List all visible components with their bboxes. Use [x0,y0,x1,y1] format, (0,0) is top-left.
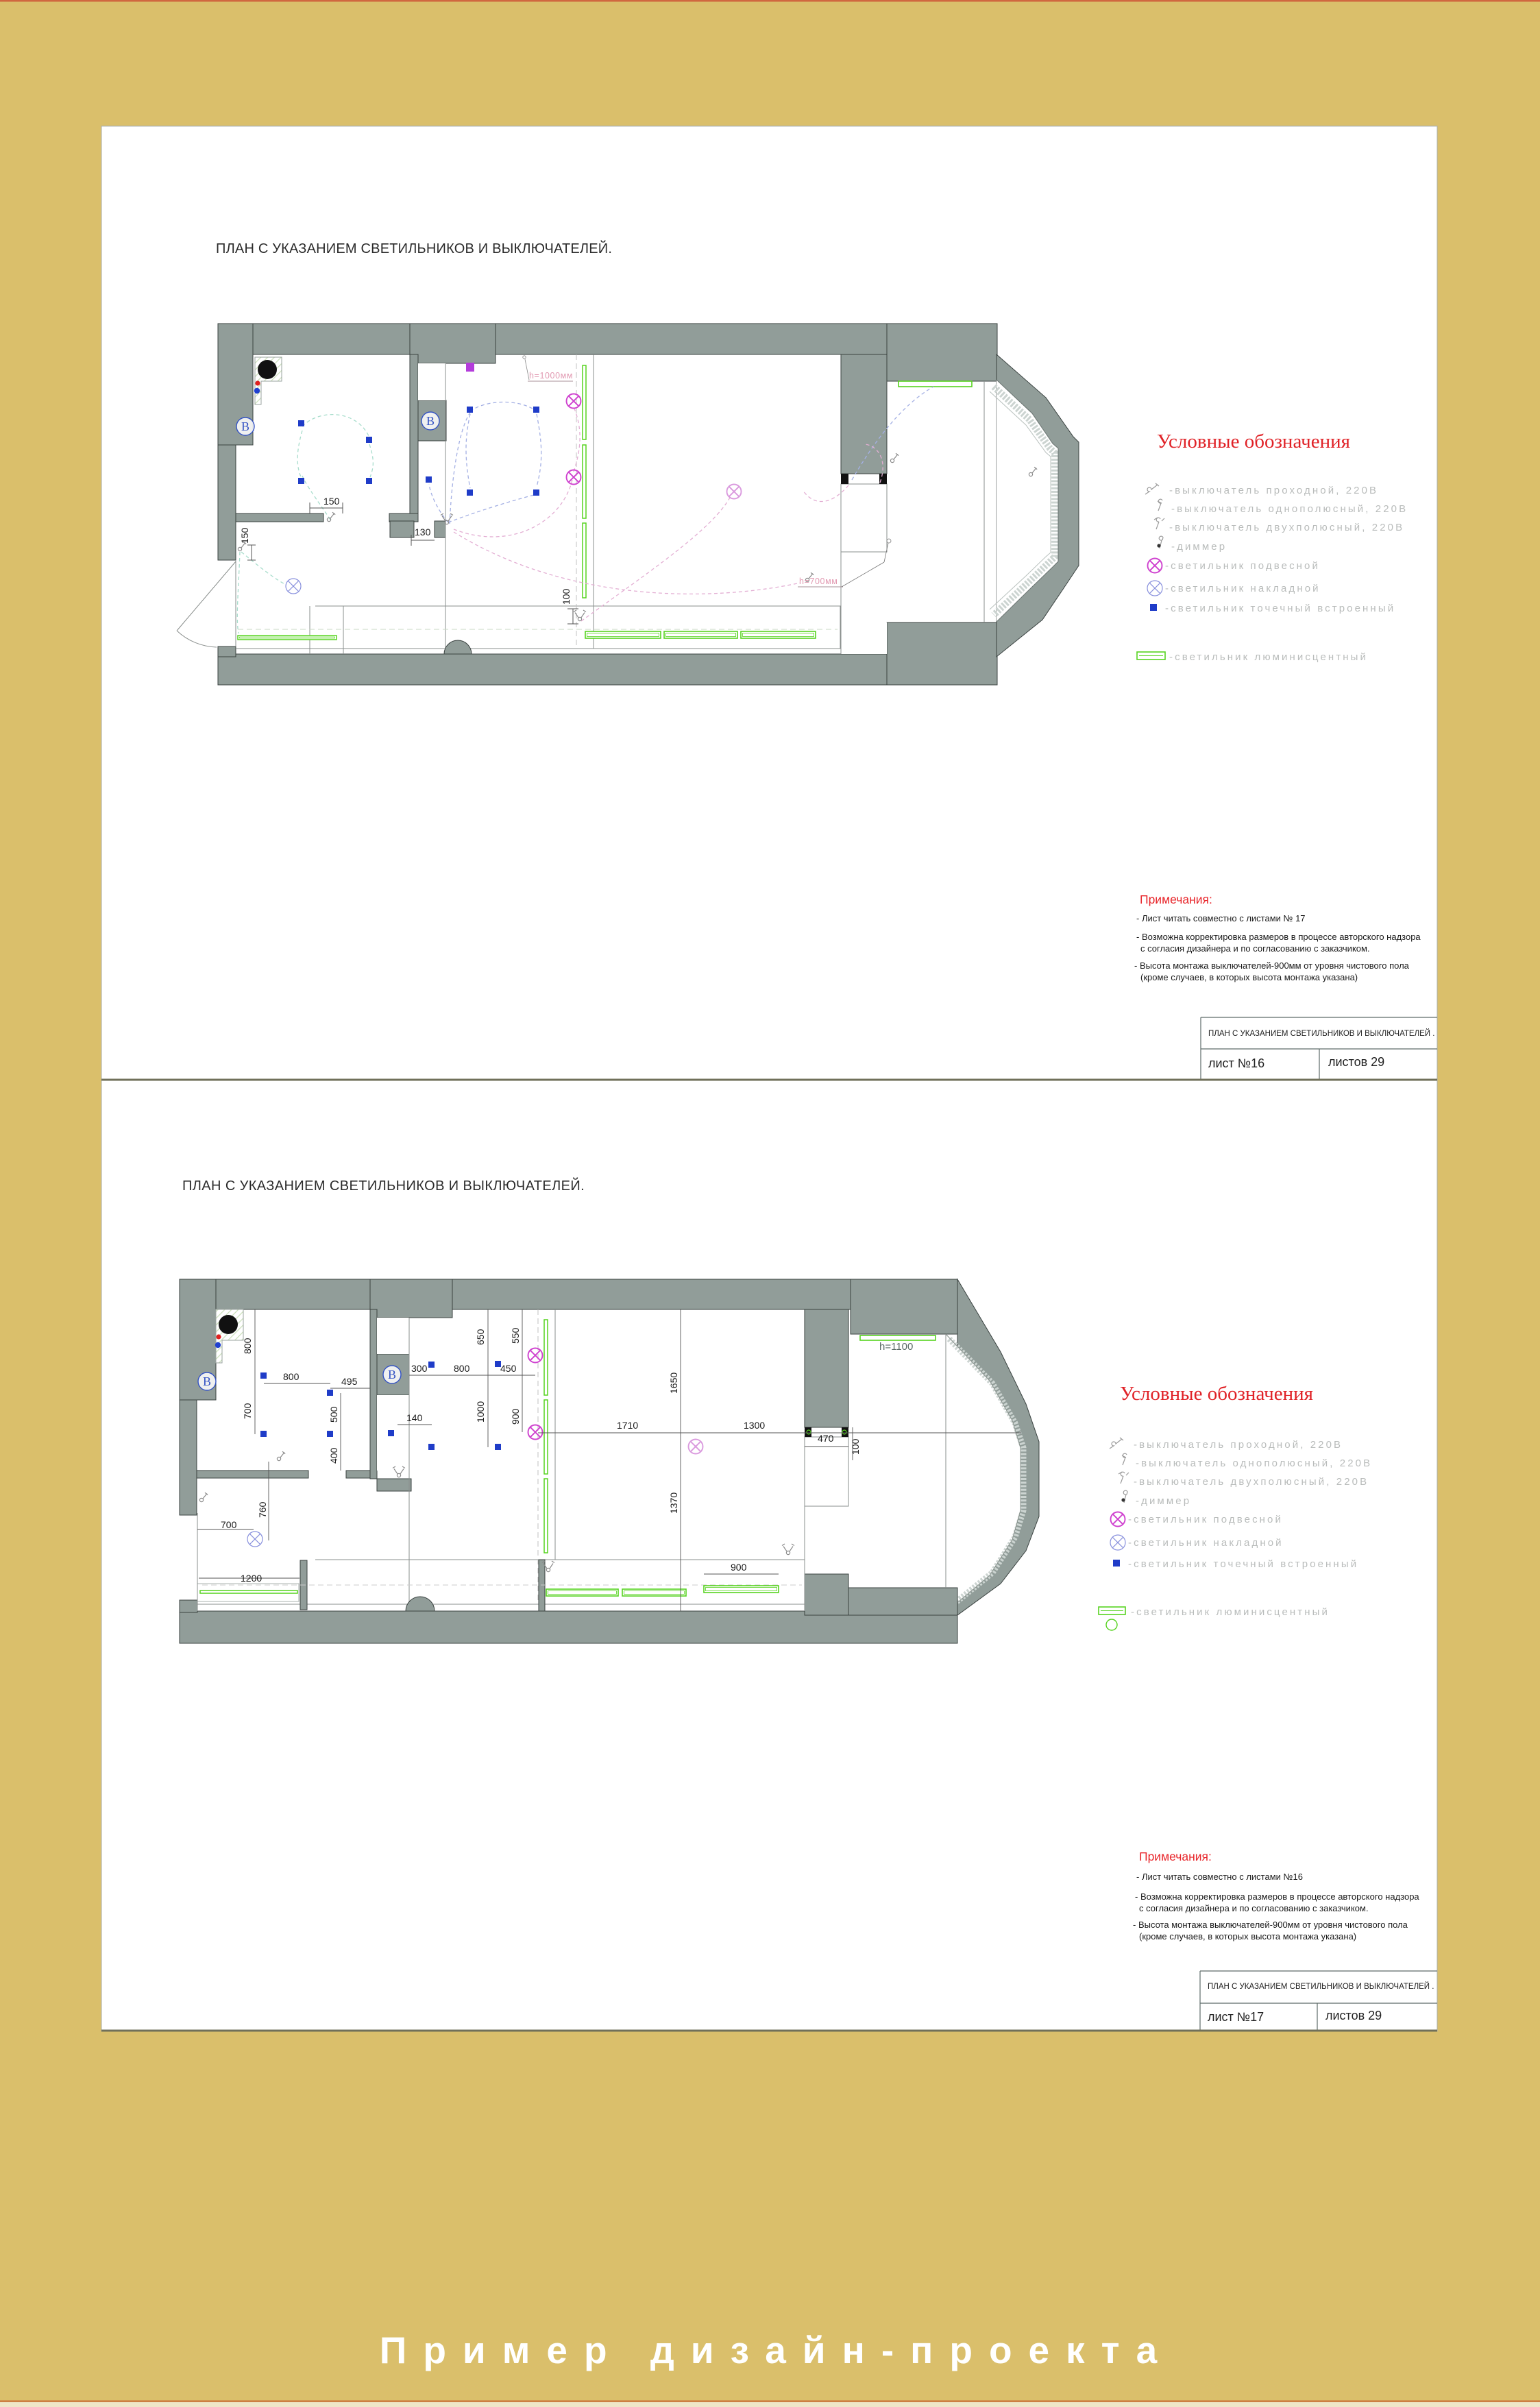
svg-text:-диммер: -диммер [1136,1495,1191,1507]
svg-text:Пример дизайн-проекта: Пример дизайн-проекта [380,2329,1173,2371]
svg-text:с согласия дизайнера и по согл: с согласия дизайнера и по согласованию с… [1139,1903,1369,1913]
svg-text:300: 300 [411,1363,428,1374]
svg-text:470: 470 [818,1433,834,1444]
svg-text:ПЛАН С УКАЗАНИЕМ СВЕТИЛЬНИКОВ: ПЛАН С УКАЗАНИЕМ СВЕТИЛЬНИКОВ И ВЫКЛЮЧАТ… [182,1177,585,1194]
svg-text:-светильник люминисцентный: -светильник люминисцентный [1169,651,1368,663]
svg-text:900: 900 [731,1562,747,1573]
svg-text:-выключатель двухполюсный, 22: -выключатель двухполюсный, 220В [1169,522,1404,533]
svg-text:-выключатель двухполюсный, 22: -выключатель двухполюсный, 220В [1134,1476,1369,1488]
svg-text:Условные обозначения: Условные обозначения [1120,1383,1313,1405]
svg-text:550: 550 [510,1327,521,1344]
svg-text:800: 800 [242,1338,253,1354]
svg-text:- Лист читать совместно с лист: - Лист читать совместно с листами № 17 [1136,913,1306,923]
svg-text:лист №16: лист №16 [1208,1056,1264,1070]
svg-text:1370: 1370 [668,1492,679,1514]
svg-text:(кроме случаев, в которых высо: (кроме случаев, в которых высота монтажа… [1139,1931,1356,1942]
svg-text:100: 100 [561,588,572,605]
svg-text:-выключатель однополюсный, 22: -выключатель однополюсный, 220В [1136,1457,1372,1469]
svg-text:лист №17: лист №17 [1208,2010,1264,2024]
svg-text:h=1000мм: h=1000мм [529,371,573,380]
svg-text:800: 800 [454,1363,470,1374]
svg-text:1000: 1000 [475,1401,486,1423]
svg-text:- Возможна корректировка разме: - Возможна корректировка размеров в проц… [1136,932,1421,942]
svg-text:-диммер: -диммер [1171,541,1227,553]
svg-text:h=700мм: h=700мм [799,577,838,586]
svg-text:-светильник накладной: -светильник накладной [1165,583,1321,594]
svg-text:-светильник накладной: -светильник накладной [1128,1537,1284,1549]
svg-text:1200: 1200 [241,1573,262,1584]
svg-text:-выключатель проходной, 220В: -выключатель проходной, 220В [1169,485,1378,496]
svg-text:-светильник подвесной: -светильник подвесной [1128,1514,1283,1525]
svg-text:-выключатель проходной, 220В: -выключатель проходной, 220В [1134,1439,1343,1451]
svg-text:450: 450 [500,1363,517,1374]
svg-text:1710: 1710 [617,1420,638,1431]
svg-text:130: 130 [415,527,431,537]
svg-text:495: 495 [341,1376,358,1387]
svg-text:500: 500 [328,1406,339,1423]
svg-text:140: 140 [406,1412,423,1423]
svg-text:800: 800 [283,1371,300,1382]
svg-text:150: 150 [323,496,340,507]
svg-text:700: 700 [221,1519,237,1530]
svg-text:- Высота монтажа выключателей-: - Высота монтажа выключателей-900мм от у… [1134,960,1410,971]
svg-text:150: 150 [239,527,250,544]
svg-text:760: 760 [257,1501,268,1518]
svg-text:листов 29: листов 29 [1325,2009,1382,2022]
svg-text:-светильник точечный встроен: -светильник точечный встроенный [1128,1558,1358,1570]
svg-text:900: 900 [510,1408,521,1425]
svg-text:ПЛАН С УКАЗАНИЕМ СВЕТИЛЬНИКОВ: ПЛАН С УКАЗАНИЕМ СВЕТИЛЬНИКОВ И ВЫКЛЮЧАТ… [216,240,612,256]
svg-text:- Высота монтажа выключателей-: - Высота монтажа выключателей-900мм от у… [1133,1920,1408,1930]
svg-text:400: 400 [328,1447,339,1464]
svg-text:- Возможна корректировка разме: - Возможна корректировка размеров в проц… [1135,1891,1419,1902]
svg-text:Примечания:: Примечания: [1139,1850,1212,1863]
svg-text:с согласия дизайнера и по согл: с согласия дизайнера и по согласованию с… [1140,943,1370,954]
svg-text:-светильник подвесной: -светильник подвесной [1165,560,1320,572]
svg-text:Условные обозначения: Условные обозначения [1157,431,1350,452]
svg-text:1650: 1650 [668,1372,679,1394]
svg-text:- Лист читать совместно с лист: - Лист читать совместно с листами №16 [1136,1872,1303,1882]
svg-text:700: 700 [242,1403,253,1419]
svg-text:100: 100 [850,1438,861,1455]
svg-text:листов 29: листов 29 [1328,1055,1384,1069]
svg-text:-выключатель однополюсный, 22: -выключатель однополюсный, 220В [1171,503,1408,515]
svg-text:ПЛАН С УКАЗАНИЕМ СВЕТИЛЬНИКОВ: ПЛАН С УКАЗАНИЕМ СВЕТИЛЬНИКОВ И ВЫКЛЮЧАТ… [1208,1982,1434,1991]
svg-text:1300: 1300 [744,1420,765,1431]
svg-text:Примечания:: Примечания: [1140,893,1212,906]
svg-text:650: 650 [475,1329,486,1345]
svg-text:(кроме случаев, в которых высо: (кроме случаев, в которых высота монтажа… [1140,972,1358,982]
svg-text:-светильник люминисцентный: -светильник люминисцентный [1131,1606,1330,1618]
svg-text:ПЛАН С УКАЗАНИЕМ СВЕТИЛЬНИКОВ: ПЛАН С УКАЗАНИЕМ СВЕТИЛЬНИКОВ И ВЫКЛЮЧАТ… [1208,1029,1434,1038]
svg-text:h=1100: h=1100 [879,1341,913,1353]
svg-text:-светильник точечный встроен: -светильник точечный встроенный [1165,603,1395,614]
